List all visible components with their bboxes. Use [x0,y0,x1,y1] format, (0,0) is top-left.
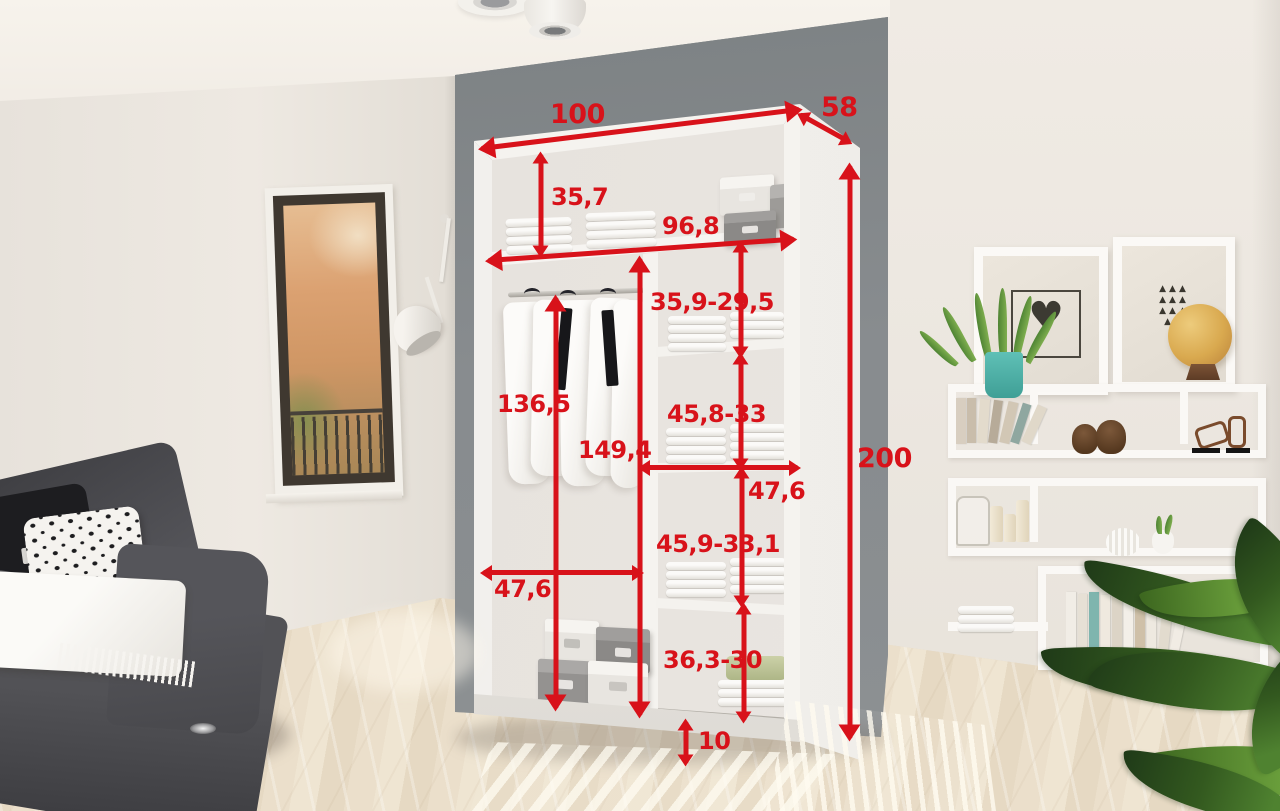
linen-stack [666,428,726,464]
dimension-label-plinth: 10 [698,727,730,755]
towel-stack [585,211,656,249]
book [1089,592,1099,650]
globe-stand [1186,364,1220,380]
dimension-label-shelf-gap-4: 36,3-30 [663,646,762,674]
shelf-divider [1030,484,1038,542]
dimension-label-shelf-gap-2: 45,8-33 [667,400,766,428]
dimension-arrow-hanging-height [554,298,559,709]
sunlight-patch [330,612,480,692]
dimension-label-total-height: 200 [857,443,912,474]
book [956,398,966,444]
triangle-row-icon: ▲▲▲ [1122,284,1226,295]
candle [990,506,1003,542]
dimension-label-shelf-gap-3: 45,9-33,1 [656,530,780,558]
pinecone [1072,424,1098,454]
dimension-label-total-width: 100 [550,99,605,130]
glasses-stand [1226,448,1250,453]
book [1066,592,1076,650]
towel-stack-bottom [718,680,788,707]
hanger [524,288,541,300]
dimension-label-inner-width: 96,8 [662,212,719,240]
paper-lantern [1106,528,1140,556]
dimension-arrow-plinth [684,722,689,764]
book [1078,594,1087,650]
teal-plant-pot [985,352,1023,398]
mini-plant-pot [1152,530,1174,554]
dimension-label-left-width: 47,6 [494,575,551,603]
window [265,184,404,500]
pinecone [1096,420,1126,454]
globe [1168,304,1232,368]
dimension-arrow-total-height [848,166,853,739]
book-stack [958,606,1014,633]
dimension-label-inner-height: 149,4 [578,436,651,464]
dimension-arrow-top-compartment [539,155,544,255]
room-scene: ♥ ▲▲▲ ▲▲▲ ▲▲▲ ▲▲ [0,0,1280,811]
book [967,398,976,443]
dimension-label-right-width: 47,6 [748,477,805,505]
storage-box-white [720,174,774,216]
mini-plant-leaf [1156,516,1162,534]
candle [1016,500,1029,542]
ceiling-spotlight-2 [524,0,586,36]
glasses-stand [1192,448,1220,453]
candle [1004,514,1016,542]
dimension-arrow-right-width [641,465,798,470]
linen-stack [666,562,726,598]
dimension-label-hanging-height: 136,5 [497,390,570,418]
book [1112,594,1122,650]
balcony-railing [291,414,385,475]
book [1101,595,1110,650]
shelf-divider [1180,390,1188,444]
triangle-row-icon: ▲▲▲ [1122,295,1226,306]
dimension-arrow-inner-height [638,259,643,716]
linen-stack [730,558,786,594]
glass-dome [956,496,990,546]
glasses-decor [1228,416,1246,448]
dimension-label-shelf-gap-1: 35,9-29,5 [650,288,774,316]
linen-stack [668,316,726,352]
window-frame [273,192,395,486]
dimension-label-depth: 58 [821,92,858,123]
dimension-label-top-compartment: 35,7 [551,183,608,211]
sofa-chrome-foot [190,723,216,734]
plant-leaf [998,288,1007,362]
window-view-autumn-trees [283,202,384,475]
